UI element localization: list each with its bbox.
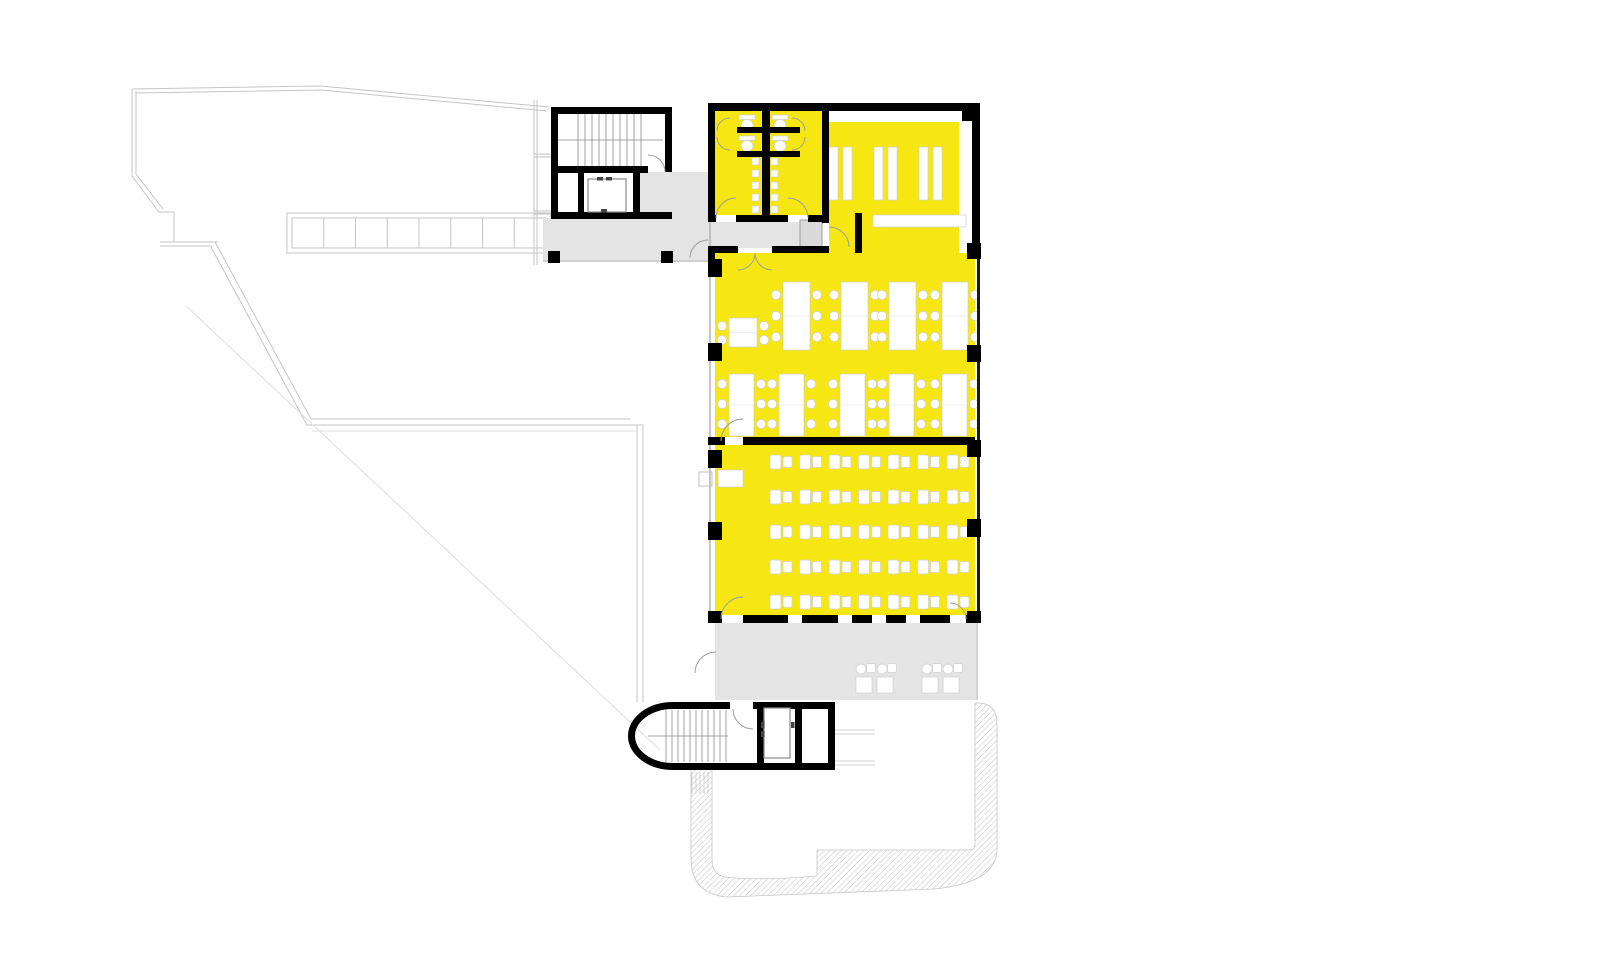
- bistro-table: [922, 677, 938, 693]
- lecture-chair: [783, 597, 792, 608]
- dining-chair: [806, 399, 815, 408]
- elevator-shaft-wall: [795, 702, 802, 770]
- lecture-chair: [842, 457, 851, 468]
- lecture-desk: [829, 595, 840, 609]
- servery-shelf: [919, 147, 928, 200]
- lecture-chair: [783, 527, 792, 538]
- toilet-fixture: [772, 115, 788, 120]
- sink: [771, 206, 778, 213]
- lecture-chair: [872, 457, 881, 468]
- terrace-walkway-lines: [835, 730, 875, 765]
- main-wall-south: [802, 615, 838, 623]
- main-wall-south: [966, 615, 980, 623]
- bistro-chair: [888, 664, 897, 673]
- servery-wall-west: [822, 247, 829, 253]
- stair-core-wall: [551, 166, 648, 173]
- bistro-chair: [954, 664, 963, 673]
- facade-pier: [967, 345, 981, 362]
- lecture-chair: [931, 527, 940, 538]
- dining-chair: [829, 332, 838, 341]
- dining-chair: [916, 379, 925, 388]
- dining-chair: [759, 335, 768, 344]
- layer-terrace: [691, 703, 997, 897]
- elevator-car-mark: [606, 177, 612, 181]
- main-wall-south: [886, 615, 906, 623]
- dining-chair: [867, 419, 876, 428]
- dining-chair: [767, 419, 776, 428]
- main-wall-west: [708, 103, 715, 222]
- site-notch: [159, 212, 174, 242]
- servery-counter-long: [873, 215, 966, 227]
- lecture-chair: [960, 597, 969, 608]
- dining-chair: [717, 379, 726, 388]
- lecture-desk: [859, 560, 870, 574]
- lecture-desk: [770, 455, 781, 469]
- elevator-car-mark: [761, 722, 765, 728]
- main-wall-south: [852, 615, 872, 623]
- bistro-chair: [856, 664, 866, 674]
- lecture-desk: [770, 525, 781, 539]
- dining-chair: [806, 419, 815, 428]
- plan-layers: [132, 86, 997, 897]
- toilet-cross-wall: [737, 127, 800, 133]
- dining-chair: [877, 290, 886, 299]
- lecture-chair: [813, 562, 822, 573]
- south-stair-wall: [828, 702, 835, 770]
- sink: [752, 206, 759, 213]
- lecture-desk: [859, 525, 870, 539]
- dining-chair: [759, 321, 768, 330]
- dining-chair: [916, 419, 925, 428]
- dining-chair: [877, 379, 886, 388]
- lecture-desk: [800, 490, 811, 504]
- dining-chair: [717, 321, 726, 330]
- facade-pier: [967, 243, 981, 259]
- sink: [771, 194, 778, 201]
- dining-chair: [930, 419, 939, 428]
- lecture-desk: [800, 525, 811, 539]
- bistro-table: [877, 677, 893, 693]
- lecture-desk: [888, 595, 899, 609]
- lecture-chair: [960, 457, 969, 468]
- dining-chair: [930, 332, 939, 341]
- lecture-desk: [829, 490, 840, 504]
- dining-chair: [828, 379, 837, 388]
- floor-plan-canvas: [0, 0, 1600, 969]
- lecture-desk: [888, 525, 899, 539]
- facade-pier: [708, 259, 722, 277]
- lecture-desk: [829, 455, 840, 469]
- lecture-desk: [888, 490, 899, 504]
- bistro-chair: [943, 664, 953, 674]
- floor-plan-drawing: [0, 0, 1600, 969]
- servery-shelf: [874, 147, 883, 200]
- site-boundary-left-inner: [136, 91, 163, 209]
- dining-chair: [867, 399, 876, 408]
- dining-chair: [812, 290, 821, 299]
- dining-lecture-wall: [708, 437, 725, 445]
- main-wall-south: [708, 615, 716, 623]
- dining-chair: [771, 332, 780, 341]
- main-wall-south: [920, 615, 950, 623]
- dining-chair: [930, 290, 939, 299]
- site-faint-diagonal: [186, 306, 660, 750]
- lecture-chair: [842, 527, 851, 538]
- lecture-chair: [813, 597, 822, 608]
- lecture-chair: [901, 492, 910, 503]
- elevator-car-mark: [761, 731, 765, 737]
- lecture-desk: [800, 595, 811, 609]
- lecture-desk: [770, 595, 781, 609]
- bistro-table: [856, 677, 872, 693]
- sink: [752, 170, 759, 177]
- dining-chair: [918, 311, 927, 320]
- lecture-desk: [770, 490, 781, 504]
- lecture-chair: [872, 527, 881, 538]
- lecture-desk: [829, 560, 840, 574]
- site-boundary-top: [132, 86, 549, 107]
- lecture-desk: [918, 560, 929, 574]
- facade-pier: [708, 343, 722, 361]
- lecture-chair: [931, 457, 940, 468]
- dining-lecture-wall: [743, 437, 975, 445]
- lecture-desk: [770, 560, 781, 574]
- lecture-desk: [947, 560, 958, 574]
- lecture-chair: [931, 492, 940, 503]
- dining-chair: [867, 379, 876, 388]
- dining-chair: [916, 399, 925, 408]
- dining-wall-north: [772, 246, 829, 253]
- lecture-desk: [888, 560, 899, 574]
- dining-chair: [930, 311, 939, 320]
- lecture-desk: [859, 490, 870, 504]
- elevator-car-mark: [791, 722, 795, 728]
- sink: [771, 170, 778, 177]
- dining-chair: [767, 399, 776, 408]
- site-boundary-diagonal: [211, 247, 643, 702]
- lecture-desk: [947, 595, 958, 609]
- dining-chair: [767, 379, 776, 388]
- lecture-chair: [813, 527, 822, 538]
- elevator-car: [588, 179, 626, 212]
- lecture-desk: [947, 455, 958, 469]
- dining-chair: [918, 290, 927, 299]
- facade-pier: [708, 522, 722, 540]
- dining-chair: [829, 311, 838, 320]
- lecture-chair: [931, 597, 940, 608]
- sink: [771, 158, 778, 165]
- servery-shelf: [829, 147, 838, 200]
- stair-core-wall: [551, 212, 672, 219]
- corridor-entry: [543, 218, 710, 262]
- bistro-table: [943, 677, 959, 693]
- bistro-chair: [933, 664, 942, 673]
- lecture-chair: [901, 562, 910, 573]
- main-wall-south: [743, 615, 788, 623]
- main-wall-north: [708, 103, 980, 111]
- lecture-desk: [859, 595, 870, 609]
- servery-wall-west: [822, 103, 829, 223]
- lecture-chair: [783, 457, 792, 468]
- toilet-cross-wall: [737, 151, 800, 157]
- facade-pier: [967, 519, 981, 537]
- lecture-desk: [947, 525, 958, 539]
- servery-shelf: [843, 147, 852, 200]
- lecture-chair: [783, 562, 792, 573]
- lecture-chair: [960, 562, 969, 573]
- elevator-car-mark: [597, 177, 603, 181]
- facade-pier: [661, 251, 673, 263]
- lecture-desk: [918, 455, 929, 469]
- bistro-chair: [922, 664, 932, 674]
- dining-chair: [812, 332, 821, 341]
- lecture-chair: [813, 492, 822, 503]
- sink: [752, 194, 759, 201]
- dining-chair: [930, 399, 939, 408]
- dining-chair: [812, 311, 821, 320]
- stair-core-wall: [551, 107, 672, 114]
- toilet-fixture: [741, 141, 753, 152]
- toilet-fixture: [772, 136, 788, 141]
- lecture-chair: [931, 562, 940, 573]
- facade-pier: [548, 251, 560, 263]
- lecture-desk: [947, 490, 958, 504]
- dining-chair: [756, 399, 765, 408]
- servery-shelf: [933, 147, 942, 200]
- door-arc: [695, 652, 716, 673]
- corridor-south: [715, 623, 978, 700]
- dining-chair: [877, 332, 886, 341]
- elevator-shaft-wall: [578, 172, 584, 219]
- toilet-fixture: [739, 115, 755, 120]
- dining-chair: [717, 399, 726, 408]
- dining-chair: [918, 332, 927, 341]
- south-stair-wall: [673, 763, 835, 770]
- south-stair-wall: [673, 702, 730, 709]
- elevator-car-mark: [601, 209, 607, 213]
- dining-chair: [829, 290, 838, 299]
- servery-wall-stub: [855, 213, 862, 253]
- dining-chair: [828, 399, 837, 408]
- dining-wall-north: [708, 246, 738, 253]
- toilet-fixture: [774, 141, 786, 152]
- dining-chair: [806, 379, 815, 388]
- main-wall-east: [972, 103, 980, 243]
- dining-chair: [828, 419, 837, 428]
- lecture-chair: [901, 597, 910, 608]
- dining-chair: [877, 419, 886, 428]
- lecture-chair: [842, 562, 851, 573]
- facade-pier: [708, 450, 722, 468]
- door-arc: [648, 155, 665, 172]
- sink: [752, 158, 759, 165]
- dining-chair: [877, 399, 886, 408]
- lecture-chair: [813, 457, 822, 468]
- lecture-desk: [918, 490, 929, 504]
- corridor-core-link: [640, 172, 708, 218]
- site-boundary-top-inner: [135, 90, 547, 111]
- lecture-chair: [960, 492, 969, 503]
- dining-chair: [771, 290, 780, 299]
- lecture-desk: [918, 595, 929, 609]
- site-boundary-diagonal-inner: [215, 242, 630, 419]
- lecture-desk: [800, 455, 811, 469]
- lecture-podium: [718, 470, 743, 487]
- dining-chair: [756, 419, 765, 428]
- bistro-chair: [867, 664, 876, 673]
- door-arc: [733, 709, 753, 729]
- elevator-shaft-wall: [633, 172, 640, 219]
- lecture-chair: [872, 562, 881, 573]
- lecture-chair: [783, 492, 792, 503]
- main-wall-east-thin: [977, 243, 980, 623]
- lecture-desk: [859, 455, 870, 469]
- dining-chair: [930, 379, 939, 388]
- stair-core-wall: [551, 107, 558, 219]
- servery-shelf: [888, 147, 897, 200]
- toilet-fixture: [739, 136, 755, 141]
- lecture-chair: [872, 492, 881, 503]
- bistro-chair: [877, 664, 887, 674]
- lecture-chair: [872, 597, 881, 608]
- servery-counter-low: [800, 220, 822, 247]
- toilet-center-wall: [762, 111, 770, 217]
- stair-core-wall: [665, 107, 672, 172]
- lecture-chair: [901, 457, 910, 468]
- lecture-desk: [800, 560, 811, 574]
- lecture-chair: [842, 597, 851, 608]
- lecture-desk: [918, 525, 929, 539]
- sink: [771, 182, 778, 189]
- dining-chair: [771, 311, 780, 320]
- terrace-hatched-band: [691, 703, 997, 897]
- lecture-desk: [888, 455, 899, 469]
- elevator-car: [764, 708, 790, 758]
- dining-chair: [877, 311, 886, 320]
- sink: [752, 182, 759, 189]
- lecture-chair: [842, 492, 851, 503]
- dining-chair: [756, 379, 765, 388]
- lecture-desk: [829, 525, 840, 539]
- toilet-wall-south: [708, 215, 716, 222]
- lecture-chair: [901, 527, 910, 538]
